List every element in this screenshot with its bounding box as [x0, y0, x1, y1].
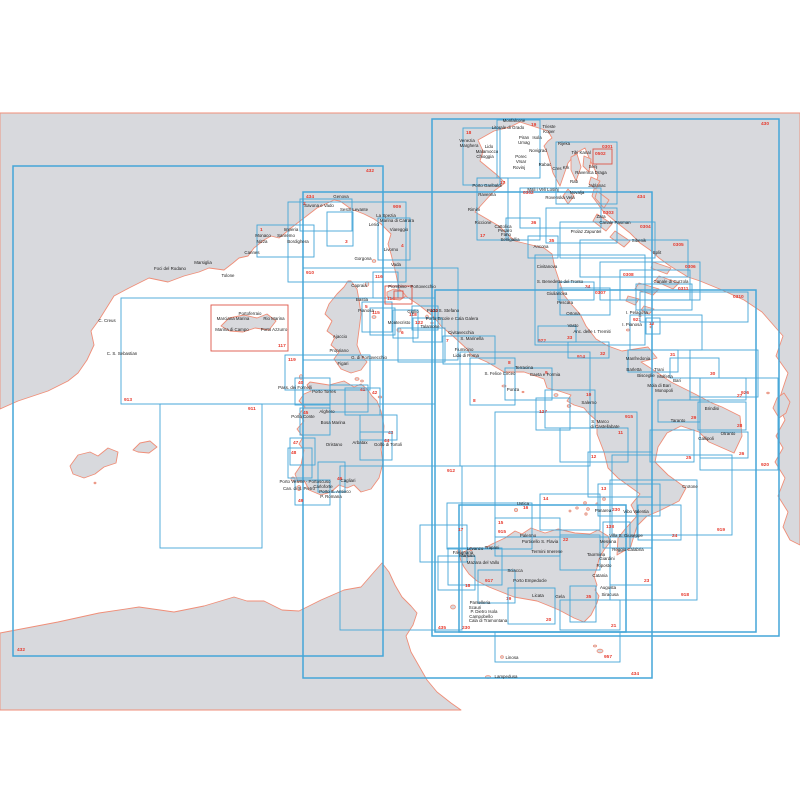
island-ventotene [522, 391, 524, 392]
chart-number-26: 26 [739, 451, 745, 457]
place-label: Bastia [356, 297, 369, 302]
place-label: Gela [555, 594, 565, 599]
place-label: Litorale di Grado [492, 125, 525, 130]
place-label: Riccione [475, 220, 492, 225]
place-label: Siracusa [601, 592, 619, 597]
place-label: Favignana [453, 550, 474, 555]
place-label: Otranto [721, 431, 736, 436]
place-label: Marsiglia [194, 260, 212, 265]
chart-number-914: 914 [577, 354, 585, 360]
chart-number-230: 230 [462, 625, 470, 631]
place-label: Chioggia [476, 154, 494, 159]
place-label: Monfalcone [503, 118, 526, 123]
chart-number-432: 432 [17, 647, 25, 653]
place-label: Vasto [568, 323, 579, 328]
island-ischia [554, 394, 558, 397]
place-label: Cres [552, 166, 562, 171]
place-label: Brindisi [705, 406, 719, 411]
place-label: Marghera [460, 143, 479, 148]
place-label: Lampedusa [495, 674, 519, 679]
place-label: Split [653, 250, 662, 255]
island-ustica [514, 508, 517, 511]
place-label: Cagliari [341, 478, 356, 483]
place-label: Sestri Levante [340, 207, 369, 212]
chart-number-47: 47 [293, 440, 299, 446]
place-label: G. di Portovecchio [351, 355, 387, 360]
place-label: Reggio Calabria [612, 547, 644, 552]
chart-number-915: 915 [625, 414, 633, 420]
place-label: Arbatax [352, 440, 368, 445]
place-label: Bosa Marina [321, 420, 346, 425]
place-label: Giardini [599, 556, 614, 561]
place-label: Sanremo [277, 233, 295, 238]
place-label: Sibenik [632, 238, 647, 243]
island-pantelleria-island [451, 605, 456, 609]
place-label: Gorgona [354, 256, 372, 261]
place-label: Civitanova [537, 264, 558, 269]
island-salina [584, 502, 587, 505]
place-label: Canale Pasman [599, 220, 631, 225]
island-cabrera [94, 482, 96, 484]
place-label: Propriano [329, 348, 349, 353]
chart-number-15: 15 [498, 520, 504, 526]
chart-number-36: 36 [531, 220, 537, 226]
place-label: Isola [532, 135, 542, 140]
chart-number-430: 430 [761, 121, 769, 127]
island-othonoi [767, 392, 770, 394]
place-label: Panarea [595, 508, 612, 513]
place-label: Capraia [351, 283, 367, 288]
place-label: Porto S. Stefano [427, 308, 460, 313]
chart-number-13: 13 [601, 486, 607, 492]
place-label: Rimini [468, 207, 480, 212]
place-label: Catania [592, 573, 608, 578]
chart-number-0308: 0308 [623, 272, 634, 278]
place-label: Rabac [539, 162, 552, 167]
place-label: Marciana Marina [217, 316, 250, 321]
place-label: Gaeta e Formia [530, 372, 561, 377]
chart-number-35: 35 [586, 594, 592, 600]
place-label: Canale di Curzola [654, 279, 689, 284]
place-label: Nizza [257, 239, 269, 244]
place-label: Linosa [506, 655, 519, 660]
chart-number-920: 920 [761, 462, 769, 468]
chart-number-910: 910 [306, 270, 314, 276]
place-label: Ravenica Draga [575, 170, 607, 175]
place-label: Mali i Veli Losinj [527, 187, 558, 192]
chart-number-912: 912 [447, 468, 455, 474]
chart-number-17: 17 [480, 233, 486, 239]
place-label: Bordighera [287, 239, 309, 244]
place-label: Barletta [626, 367, 642, 372]
place-label: Golfo di Tortoli [374, 442, 402, 447]
place-label: Genova [333, 194, 349, 199]
island-caprera [361, 380, 364, 382]
place-label: Krk [563, 165, 570, 170]
place-label: Porto Conte [291, 414, 315, 419]
chart-number-119: 119 [288, 357, 296, 363]
place-label: Termini Imerese [531, 549, 563, 554]
place-label: Trapani [485, 545, 500, 550]
chart-number-919: 919 [717, 527, 725, 533]
place-label: Ustica [517, 501, 530, 506]
chart-number-31: 31 [670, 352, 676, 358]
place-label: Tolone [222, 273, 235, 278]
place-label: Crotone [682, 484, 698, 489]
island-alicudi [569, 510, 571, 512]
place-label: Montecristo [388, 320, 411, 325]
place-label: Villa S. Giuseppe [609, 533, 643, 538]
chart-number-909: 909 [393, 204, 401, 210]
place-label: Talamone [420, 324, 440, 329]
place-label: Porto Torres [312, 389, 337, 394]
chart-number-117: 117 [278, 343, 286, 349]
chart-number-12: 12 [591, 454, 597, 460]
place-label: di Castellabate [590, 424, 620, 429]
place-label: Foci del Rodano [154, 266, 187, 271]
chart-number-0502: 0502 [595, 151, 606, 157]
place-label: Ponza [507, 387, 520, 392]
chart-number-138: 138 [606, 524, 614, 530]
place-label: Umag [518, 140, 530, 145]
place-label: I. Pianosa [622, 322, 642, 327]
chart-number-432: 432 [366, 168, 374, 174]
chart-number-18: 18 [466, 130, 472, 136]
place-label: Can. di S. Pietro [283, 486, 316, 491]
place-label: Vrsar [516, 159, 527, 164]
place-label: Marina di Carrara [380, 218, 415, 223]
place-label: Jablanac [588, 183, 606, 188]
place-label: Rio Marina [263, 316, 285, 321]
island-pianosa-toscana [372, 316, 376, 319]
chart-number-27: 27 [737, 393, 743, 399]
island-gorgona [372, 260, 376, 263]
place-label: Vada [391, 262, 401, 267]
place-label: Novigrad [529, 148, 547, 153]
island-asinara [299, 375, 302, 380]
island-malta [597, 649, 603, 653]
chart-number-20: 20 [546, 617, 552, 623]
place-label: Trani [654, 367, 664, 372]
place-label: Taranto [671, 418, 686, 423]
chart-number-127: 127 [539, 409, 547, 415]
chart-number-43: 43 [388, 430, 394, 436]
chart-number-21: 21 [611, 623, 617, 629]
place-label: Ortona [566, 311, 580, 316]
island-filicudi [576, 507, 579, 509]
chart-number-29: 29 [691, 415, 697, 421]
place-label: Giglio [407, 309, 419, 314]
place-label: Terracina [515, 365, 534, 370]
chart-number-24: 24 [672, 533, 678, 539]
place-label: Cala di Tramontana [469, 618, 508, 623]
place-label: Rab [570, 179, 579, 184]
place-label: Prolaz Zapuntel [571, 229, 602, 234]
place-label: Porto Empedocle [513, 578, 547, 583]
place-label: Vibo Valentia [623, 509, 649, 514]
chart-number-19: 19 [506, 596, 512, 602]
place-label: Zara [596, 214, 606, 219]
island-linosa-island [501, 656, 504, 659]
place-label: Porto Garibaldi [472, 183, 501, 188]
place-label: S. Marinella [460, 336, 484, 341]
place-label: Piombino - Portovecchio [388, 284, 436, 289]
place-label: Cannes [244, 250, 260, 255]
place-label: Molfetta [657, 374, 673, 379]
chart-number-0310: 0310 [733, 294, 744, 300]
place-label: Anc. delle I. Tremiti [573, 329, 610, 334]
chart-number-434: 434 [631, 671, 639, 677]
island-lipari [587, 508, 590, 511]
chart-number-10: 10 [586, 392, 592, 398]
place-label: Koper [543, 129, 555, 134]
place-label: Pass. dei Fornelli [278, 385, 312, 390]
place-label: Marina di Campo [215, 327, 249, 332]
chart-number-18: 18 [465, 583, 471, 589]
place-label: Bisceglie [637, 373, 655, 378]
place-label: Savona e Vado [304, 203, 334, 208]
chart-number-48: 48 [291, 450, 297, 456]
place-label: Manfredonia [626, 356, 651, 361]
place-label: Monaco [255, 233, 271, 238]
chart-number-8: 8 [473, 398, 476, 404]
chart-number-22: 22 [563, 537, 569, 543]
place-label: Porticello S. Flavia [522, 539, 559, 544]
place-label: C. S. Sebastian [107, 351, 138, 356]
chart-number-915: 915 [498, 529, 506, 535]
place-label: Tihi Kanal [571, 150, 590, 155]
chart-index-map: 4324324344344344304352302309099109139119… [0, 0, 800, 800]
chart-number-0307: 0307 [595, 290, 606, 296]
place-label: Messina [600, 539, 617, 544]
island-vulcano [585, 513, 587, 515]
place-label: Salerno [581, 400, 597, 405]
chart-number-14: 14 [543, 496, 549, 502]
place-label: Alghero [319, 409, 335, 414]
chart-number-911: 911 [248, 406, 256, 412]
place-label: Porto Ercole e Cala Galera [426, 316, 479, 321]
chart-number-30: 30 [710, 371, 716, 377]
chart-number-918: 918 [681, 592, 689, 598]
chart-number-0311: 0311 [678, 286, 689, 292]
place-label: Lido di Roma [453, 353, 479, 358]
island-maddalena [355, 378, 359, 381]
chart-number-917: 917 [485, 578, 493, 584]
chart-number-6: 6 [401, 330, 404, 336]
chart-number-25: 25 [686, 455, 692, 461]
chart-number-0304: 0304 [640, 224, 651, 230]
chart-number-11: 11 [618, 430, 623, 436]
island-gozo [593, 645, 596, 647]
place-label: Gallipoli [698, 436, 714, 441]
chart-number-0305: 0305 [673, 242, 684, 248]
place-label: Fiumicino [455, 347, 474, 352]
place-label: Mazara del Vallo [467, 560, 500, 565]
place-label: I. Pelagosa [626, 310, 649, 315]
place-label: Livorno [384, 247, 399, 252]
place-label: Lerici [369, 222, 380, 227]
chart-number-28: 28 [737, 423, 743, 429]
chart-number-922: 922 [538, 338, 546, 344]
place-label: Senj [589, 164, 598, 169]
place-label: Licata [532, 593, 544, 598]
chart-number-8: 8 [508, 360, 511, 366]
place-label: Riposto [597, 563, 612, 568]
place-label: Figari [338, 361, 349, 366]
chart-number-7: 7 [446, 338, 449, 344]
chart-number-4: 4 [401, 243, 404, 249]
place-label: Ravenna [478, 192, 496, 197]
chart-number-116: 116 [375, 274, 383, 280]
place-label: Rovenska Vela [545, 195, 575, 200]
place-label: Senigallia [500, 237, 520, 242]
place-label: S. Felice Circeo [485, 371, 517, 376]
place-label: P. Romana [320, 494, 342, 499]
place-label: Sciacca [507, 568, 523, 573]
place-label: Monopoli [655, 388, 673, 393]
place-label: Ancona [534, 244, 549, 249]
place-label: Ajaccio [333, 334, 348, 339]
place-label: Bari [673, 378, 681, 383]
chart-number-3: 3 [345, 239, 348, 245]
place-label: S. Benedetto del Tronto [537, 279, 584, 284]
chart-number-17: 17 [458, 527, 464, 533]
place-label: Imperia [284, 227, 299, 232]
chart-number-913: 913 [124, 397, 132, 403]
place-label: Rovinj [513, 165, 525, 170]
place-label: Civitavecchia [448, 330, 474, 335]
place-label: C. Creus [98, 318, 116, 323]
chart-number-0306: 0306 [685, 264, 696, 270]
chart-number-957: 957 [604, 654, 612, 660]
chart-number-23: 23 [644, 578, 650, 584]
place-label: Rijeka [558, 141, 571, 146]
island-stromboli [603, 498, 606, 501]
place-label: Giulianova [547, 291, 568, 296]
place-label: Viareggio [390, 227, 409, 232]
chart-number-434: 434 [637, 194, 645, 200]
place-label: Porto Azzurro [261, 327, 288, 332]
island-tremiti [626, 329, 629, 331]
place-label: Palermo [520, 533, 537, 538]
chart-number-230: 230 [612, 507, 620, 513]
chart-number-49: 49 [298, 498, 304, 504]
place-label: Augusta [600, 585, 617, 590]
chart-number-33: 33 [567, 335, 573, 341]
chart-number-42: 42 [372, 390, 378, 396]
place-label: Pescara [557, 300, 574, 305]
place-label: Pianosa [358, 308, 374, 313]
nautical-chart-index-page: 4324324344344344304352302309099109139119… [0, 0, 800, 800]
chart-number-19: 19 [531, 122, 537, 128]
chart-number-32: 32 [600, 351, 606, 357]
place-label: Oristano [326, 442, 343, 447]
chart-number-34: 34 [585, 284, 591, 290]
